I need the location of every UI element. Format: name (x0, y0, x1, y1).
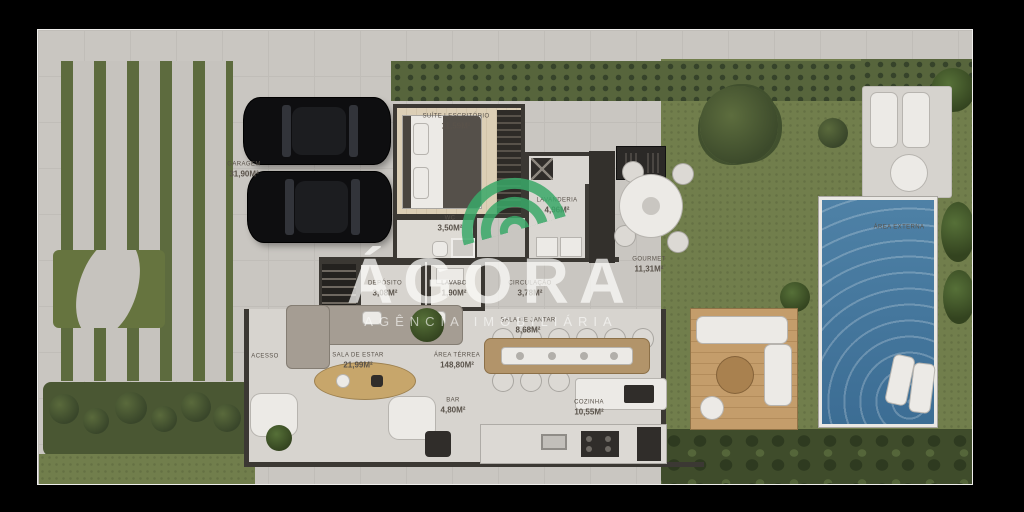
room-area: 1,90m² (441, 288, 467, 298)
bush (818, 118, 848, 148)
gourmet-counter (589, 151, 615, 263)
plate (548, 352, 556, 360)
car-roof (295, 181, 348, 233)
bush (151, 406, 177, 432)
headboard (403, 116, 411, 208)
room-name: SUÍTE | ESCRITÓRIO (422, 113, 489, 121)
bush (181, 392, 211, 422)
room-label-circulacao: CIRCULAÇÃO3,78m² (508, 280, 551, 298)
wc-room (393, 216, 477, 262)
room-area: 10,55m² (574, 407, 604, 417)
room-label-area-terrea: ÁREA TÉRREA148,80m² (434, 352, 480, 370)
wardrobe (497, 110, 521, 214)
room-area: 31,90m² (227, 169, 260, 179)
chaise (287, 306, 329, 368)
lounger (871, 93, 897, 147)
gourmet-chair (668, 232, 688, 252)
paver-grass-strips (61, 61, 233, 381)
umbrella-table (891, 155, 927, 191)
room-name: COZINHA (574, 399, 604, 407)
room-label-garagem: GARAGEM31,90m² (227, 161, 260, 179)
hedge-band-top (391, 61, 863, 101)
lounger (903, 93, 929, 147)
refrigerator (637, 427, 661, 461)
room-name: SALA DE JANTAR (500, 317, 555, 325)
shrub-row-bottom (661, 429, 973, 485)
room-name: CIRCULAÇÃO (508, 280, 551, 288)
car-2 (248, 172, 391, 242)
tree (700, 86, 778, 164)
burner (605, 446, 611, 452)
dryer (561, 238, 581, 256)
car-windshield (282, 105, 291, 158)
hedge-right-edge (941, 202, 973, 262)
pillow (363, 312, 381, 324)
shaft (531, 158, 553, 180)
shower (453, 240, 473, 256)
room-name: LAVABO (441, 280, 467, 288)
room-area: 148,80m² (434, 360, 480, 370)
stove (581, 431, 619, 457)
room-label-suite: SUÍTE | ESCRITÓRIO11,59m² (422, 113, 489, 131)
cooktop (624, 385, 654, 403)
toilet (433, 242, 447, 256)
wall (244, 309, 249, 467)
hedge-right-edge (943, 270, 973, 324)
room-label-acesso: ACESSO (251, 353, 278, 361)
room-area: 11,59m² (422, 121, 489, 131)
room-name: SALA DE ESTAR (332, 352, 383, 360)
room-label-wc: WC3,50m² (438, 215, 463, 233)
washer (537, 238, 557, 256)
room-label-lavanderia: LAVANDERIA4,96m² (536, 197, 577, 215)
table-decor (371, 375, 383, 387)
planting-bed (43, 382, 251, 456)
room-label-gourmet: GOURMET11,31m² (632, 256, 665, 274)
lawn-bottom-left (39, 454, 255, 485)
plate (610, 352, 618, 360)
pillow (414, 168, 428, 198)
room-area: 3,08m² (368, 288, 402, 298)
patio (863, 87, 951, 197)
room-name: WC (438, 215, 463, 223)
room-area: 21,99m² (332, 360, 383, 370)
room-name: ÁREA TÉRREA (434, 352, 480, 360)
car-roof (292, 107, 346, 156)
burner (605, 436, 611, 442)
gourmet-table (620, 175, 682, 237)
indoor-plant (266, 425, 292, 451)
room-name: ÁREA EXTERNA (874, 224, 925, 232)
outdoor-sofa (697, 317, 787, 343)
pouf (701, 397, 723, 419)
room-area: 3,50m² (438, 223, 463, 233)
table-runner (502, 348, 632, 364)
grill-grate (644, 153, 660, 173)
dining-table (485, 339, 649, 373)
room-area: 11,31m² (632, 264, 665, 274)
bush (213, 404, 241, 432)
room-name: GARAGEM (227, 161, 260, 169)
plate (580, 352, 588, 360)
floor-plan-render: GARAGEM31,90m² SUÍTE | ESCRITÓRIO11,59m²… (0, 0, 1024, 512)
pool-lounger (909, 363, 935, 413)
bush (83, 408, 109, 434)
dining-chair (549, 371, 569, 391)
bush (49, 394, 79, 424)
room-area: 3,78m² (508, 288, 551, 298)
outdoor-sofa (765, 345, 791, 405)
car-1 (244, 98, 390, 164)
burner (586, 436, 592, 442)
room-name: GOURMET (632, 256, 665, 264)
car-rear-window (349, 105, 358, 158)
room-label-bar: BAR4,80m² (441, 397, 466, 415)
room-area: 4,80m² (441, 405, 466, 415)
room-name: DEPÓSITO (368, 280, 402, 288)
bar-cabinet (425, 431, 451, 457)
curved-path (64, 250, 151, 328)
room-label-deposito: DEPÓSITO3,08m² (368, 280, 402, 298)
plate (516, 352, 524, 360)
room-label-sala-jantar: SALA DE JANTAR8,68m² (500, 317, 555, 335)
potted-plant (780, 282, 810, 312)
kitchen-counter (481, 425, 666, 463)
table-centerpiece (642, 197, 660, 215)
garden-patch (53, 250, 165, 328)
wood-deck (691, 309, 797, 429)
kitchen-sink (541, 434, 567, 450)
burner (586, 446, 592, 452)
room-name: ACESSO (251, 353, 278, 361)
room-name: LAVANDERIA (536, 197, 577, 205)
dining-chair (521, 371, 541, 391)
outdoor-coffee-table (717, 357, 753, 393)
table-decor (337, 375, 349, 387)
bush (115, 392, 147, 424)
room-label-area-externa: ÁREA EXTERNA (874, 224, 925, 232)
room-label-sala-estar: SALA DE ESTAR21,99m² (332, 352, 383, 370)
car-windshield (285, 179, 294, 235)
plan-canvas: GARAGEM31,90m² SUÍTE | ESCRITÓRIO11,59m²… (37, 29, 973, 485)
indoor-plant (410, 308, 444, 342)
room-area: 8,68m² (500, 325, 555, 335)
room-area: 4,96m² (536, 205, 577, 215)
dining-chair (493, 371, 513, 391)
car-rear-window (351, 179, 360, 235)
room-label-cozinha: COZINHA10,55m² (574, 399, 604, 417)
room-label-lavabo: LAVABO1,90m² (441, 280, 467, 298)
room-name: BAR (441, 397, 466, 405)
gourmet-chair (673, 164, 693, 184)
